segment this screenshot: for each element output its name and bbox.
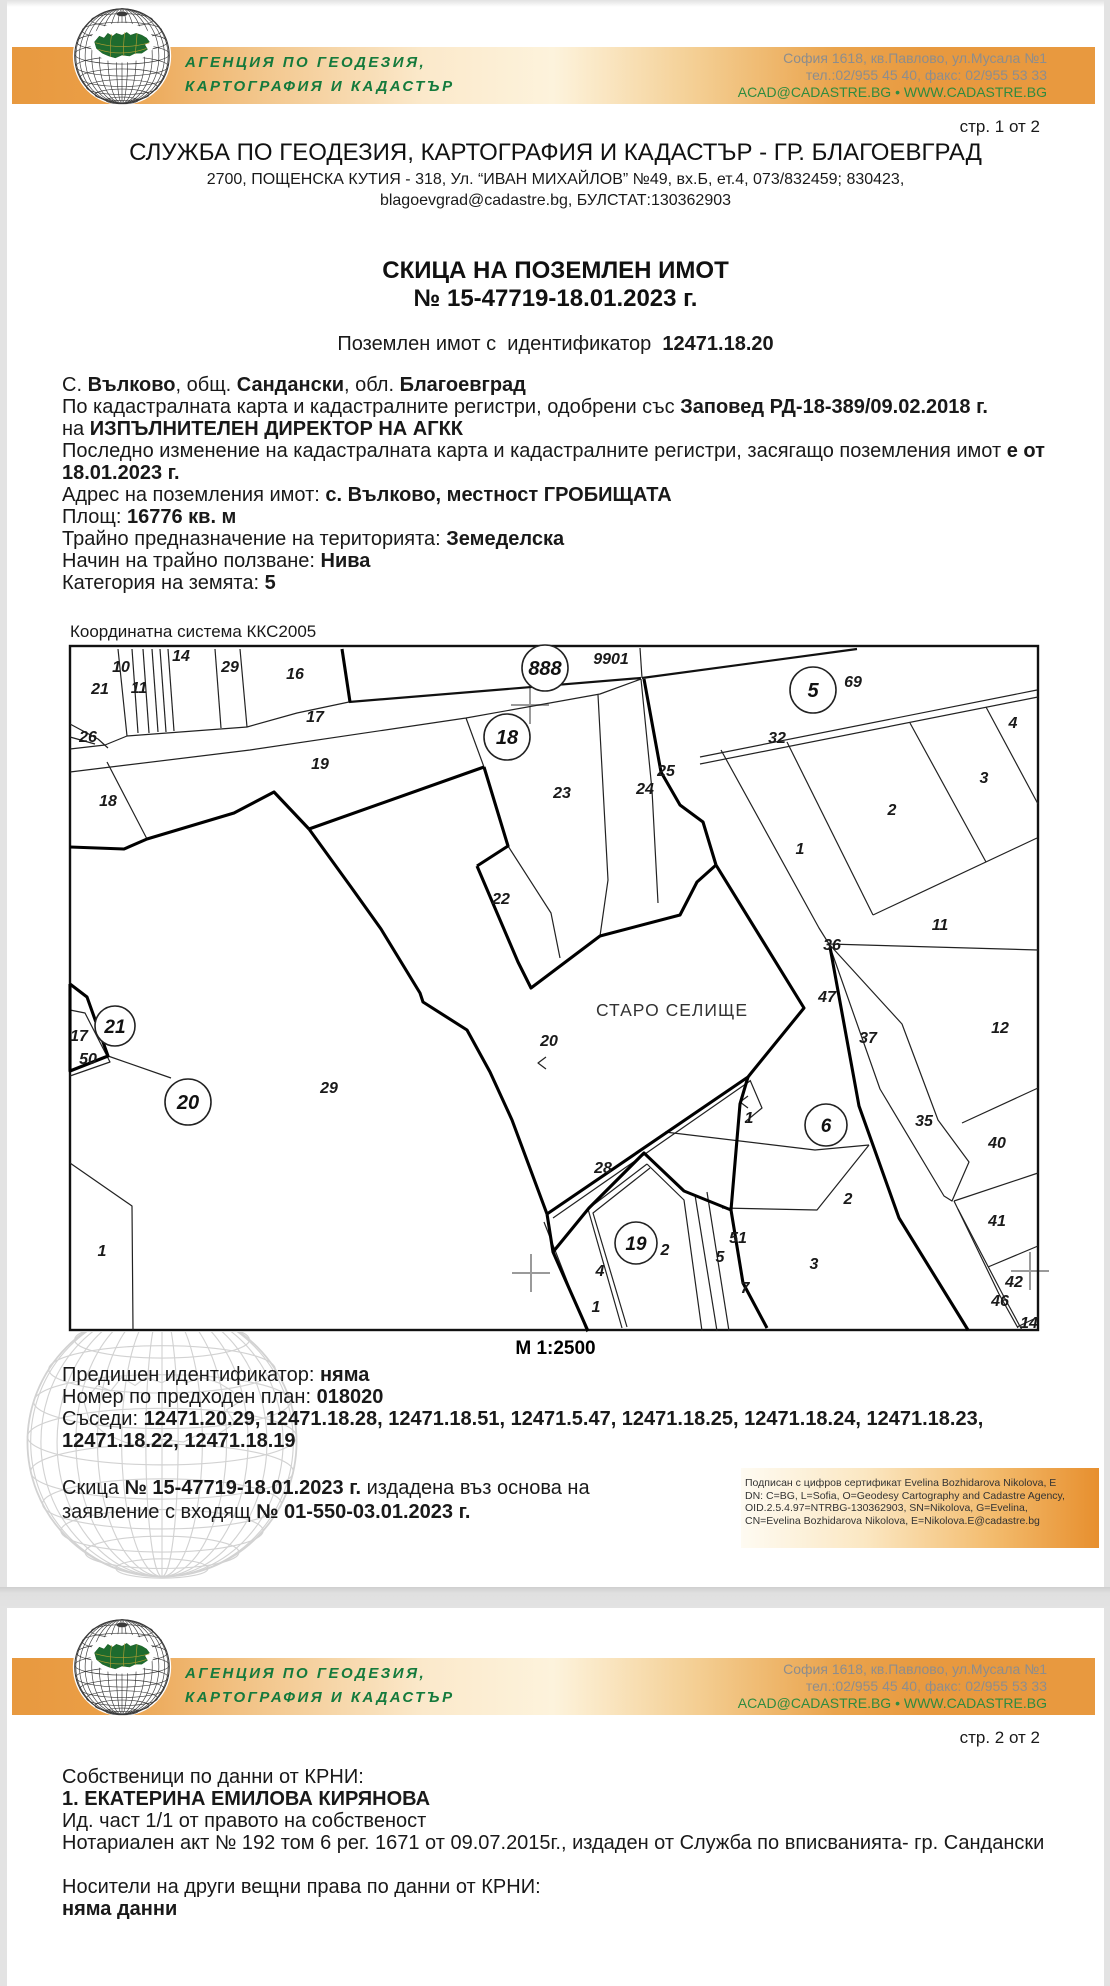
svg-text:37: 37 [859, 1030, 878, 1047]
svg-text:23: 23 [552, 785, 571, 802]
svg-text:22: 22 [491, 891, 510, 908]
svg-text:19: 19 [625, 1234, 647, 1255]
svg-text:14: 14 [172, 648, 190, 665]
svg-text:7: 7 [741, 1280, 751, 1297]
svg-text:29: 29 [319, 1080, 338, 1097]
svg-text:9901: 9901 [593, 651, 629, 668]
svg-text:1: 1 [592, 1299, 601, 1316]
svg-text:2: 2 [843, 1191, 853, 1208]
svg-text:42: 42 [1004, 1274, 1023, 1291]
svg-text:32: 32 [768, 730, 786, 747]
svg-text:40: 40 [987, 1135, 1006, 1152]
svg-text:888: 888 [528, 658, 562, 680]
svg-text:2: 2 [660, 1242, 670, 1259]
svg-text:17: 17 [70, 1028, 89, 1045]
svg-text:4: 4 [1008, 715, 1018, 732]
svg-text:10: 10 [112, 659, 130, 676]
svg-text:35: 35 [915, 1113, 934, 1130]
svg-text:16: 16 [286, 666, 304, 683]
svg-text:20: 20 [176, 1092, 199, 1114]
svg-text:19: 19 [311, 756, 329, 773]
svg-text:18: 18 [99, 793, 117, 810]
svg-text:41: 41 [987, 1213, 1006, 1230]
svg-text:36: 36 [823, 937, 841, 954]
svg-text:50: 50 [79, 1051, 97, 1068]
svg-text:1: 1 [796, 841, 805, 858]
svg-text:СТАРО СЕЛИЩЕ: СТАРО СЕЛИЩЕ [596, 1000, 748, 1020]
svg-text:21: 21 [103, 1017, 125, 1038]
svg-text:5: 5 [716, 1249, 726, 1266]
svg-text:21: 21 [90, 681, 109, 698]
svg-text:69: 69 [844, 674, 862, 691]
svg-text:20: 20 [539, 1033, 558, 1050]
svg-text:26: 26 [78, 729, 97, 746]
svg-text:1: 1 [98, 1243, 107, 1260]
svg-text:11: 11 [932, 917, 949, 934]
svg-text:6: 6 [821, 1116, 832, 1137]
svg-text:14: 14 [1020, 1315, 1038, 1332]
svg-text:4: 4 [595, 1263, 605, 1280]
svg-text:24: 24 [635, 781, 654, 798]
svg-text:18: 18 [496, 727, 519, 749]
svg-text:29: 29 [220, 659, 239, 676]
svg-text:1: 1 [745, 1110, 754, 1127]
svg-text:17: 17 [306, 709, 325, 726]
svg-text:47: 47 [817, 989, 837, 1006]
svg-text:46: 46 [990, 1293, 1009, 1310]
svg-text:28: 28 [593, 1160, 612, 1177]
svg-text:25: 25 [656, 763, 676, 780]
svg-text:2: 2 [887, 802, 897, 819]
svg-text:3: 3 [980, 770, 989, 787]
svg-text:12: 12 [991, 1020, 1009, 1037]
svg-text:51: 51 [729, 1230, 747, 1247]
svg-text:11: 11 [131, 680, 148, 697]
svg-text:5: 5 [807, 680, 819, 702]
svg-text:3: 3 [810, 1256, 819, 1273]
